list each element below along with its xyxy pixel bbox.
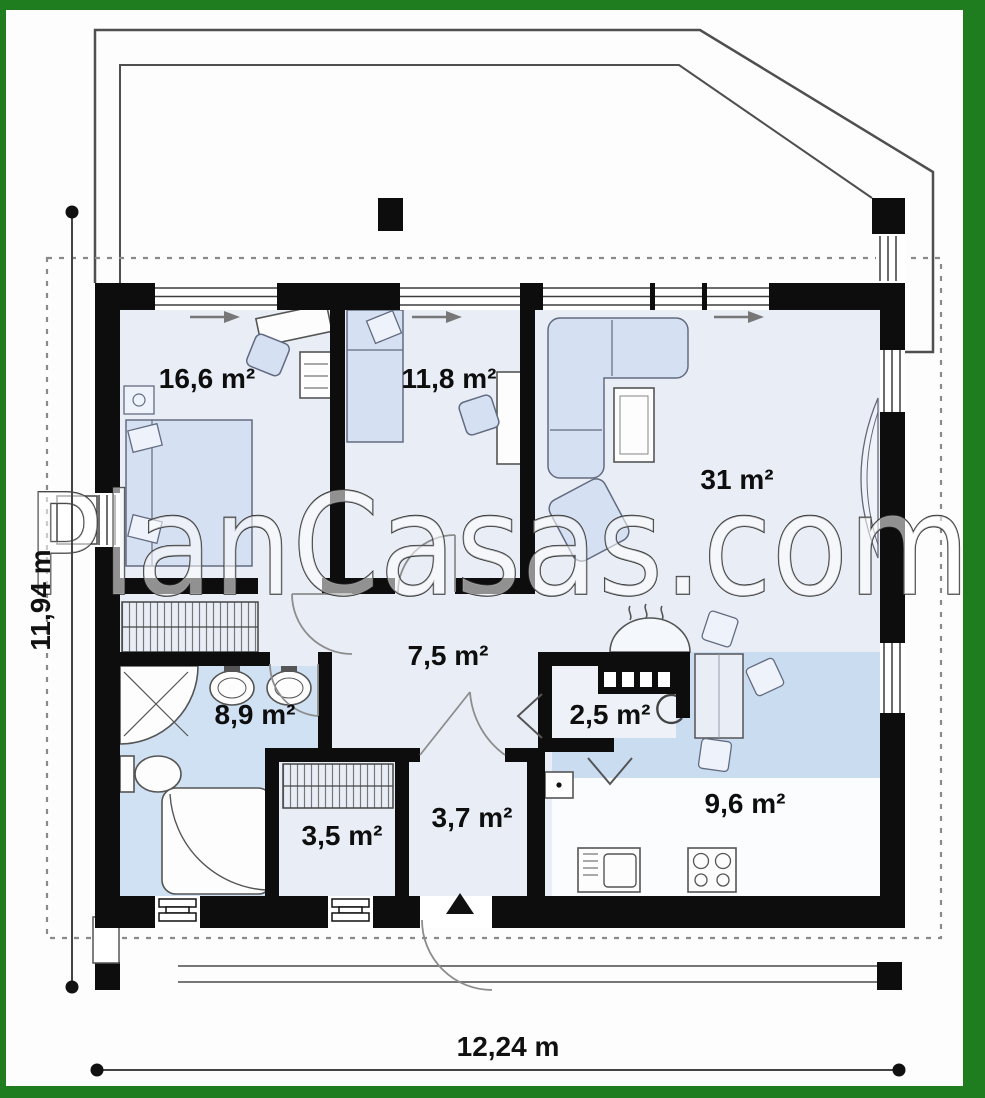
bathtub-icon bbox=[162, 788, 272, 894]
coffee-table-icon bbox=[614, 388, 654, 462]
dining-table-icon bbox=[695, 654, 743, 738]
window-icon bbox=[880, 350, 905, 412]
stove-burners-icon bbox=[688, 848, 736, 892]
chimney-icon bbox=[378, 198, 403, 231]
room-label-closet: 3,5 m² bbox=[302, 820, 383, 851]
window-icon bbox=[880, 643, 905, 713]
bed-single-icon bbox=[347, 310, 403, 442]
window-icon bbox=[400, 283, 520, 310]
room-label-entry: 3,7 m² bbox=[432, 802, 513, 833]
window-icon bbox=[543, 283, 769, 310]
dimension-height-label: 11,94 m bbox=[25, 549, 56, 650]
room-label-bedroom2: 11,8 m² bbox=[402, 363, 497, 394]
nightstand-icon bbox=[124, 386, 154, 414]
room-label-bedroom1: 16,6 m² bbox=[159, 363, 256, 394]
toilet-icon bbox=[120, 756, 181, 792]
room-label-pantry: 2,5 m² bbox=[570, 699, 651, 730]
floor-plan-page: 16,6 m² 11,8 m² 31 m² 7,5 m² 8,9 m² 2,5 … bbox=[0, 0, 985, 1098]
pantry-shelves-icon bbox=[598, 666, 678, 694]
wardrobe-icon bbox=[283, 764, 393, 808]
window-icon bbox=[155, 896, 200, 928]
window-icon bbox=[328, 896, 373, 928]
dishwasher-icon bbox=[545, 772, 573, 798]
watermark-text: PlanCasas.com bbox=[26, 465, 970, 628]
window-icon bbox=[155, 283, 277, 310]
dimension-width-label: 12,24 m bbox=[457, 1031, 560, 1062]
window-icon bbox=[876, 234, 905, 283]
room-label-hall: 7,5 m² bbox=[408, 640, 489, 671]
fridge-icon bbox=[578, 848, 640, 892]
floor-plan: 16,6 m² 11,8 m² 31 m² 7,5 m² 8,9 m² 2,5 … bbox=[0, 0, 985, 1098]
room-label-bathroom: 8,9 m² bbox=[215, 699, 296, 730]
room-label-kitchen: 9,6 m² bbox=[705, 788, 786, 819]
dining-chair-icon bbox=[698, 738, 732, 772]
